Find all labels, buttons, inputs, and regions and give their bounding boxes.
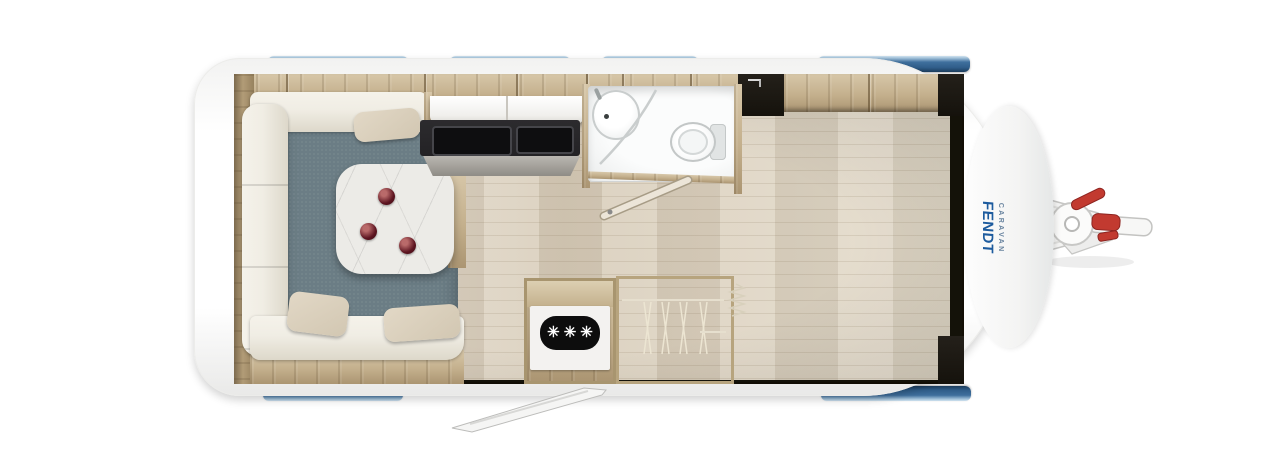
brand-subtitle: CARAVAN [997, 200, 1004, 253]
locker-latch-icon [748, 79, 761, 87]
coffee-cup [378, 188, 395, 205]
bathroom-side-wall [734, 84, 742, 194]
kitchen-worktop [420, 156, 580, 176]
kitchen-hob [516, 126, 574, 154]
freezer-rating-icon: ✳✳✳ [540, 316, 600, 350]
dark-storage-niche [738, 74, 784, 116]
coupling-shaft [1087, 215, 1152, 236]
hitch-handle-red [1070, 187, 1107, 212]
wardrobe [616, 276, 734, 384]
hitch-shadow [1046, 256, 1134, 268]
caravan-interior: ✳✳✳ [234, 74, 964, 384]
sofa-cushion [286, 290, 350, 337]
kitchen-sink [432, 126, 512, 156]
coffee-cup [360, 223, 377, 240]
coupling-lock-red [1091, 213, 1120, 231]
caravan-floorplan: ✳✳✳ [0, 0, 1280, 471]
sink-drain [604, 114, 609, 119]
dark-corner-bottom [938, 336, 964, 384]
sofa-cushion [353, 107, 421, 143]
toilet-seat [678, 129, 708, 155]
coupling-head [1051, 203, 1093, 245]
brand-name: FENDT [980, 200, 995, 254]
breakaway-grip-red [1097, 230, 1118, 241]
cabinet-divider [868, 74, 870, 112]
coffee-cup [399, 237, 416, 254]
jockey-wheel-arm [1058, 226, 1112, 254]
sofa-cushion [383, 303, 461, 342]
front-logo: CARAVAN FENDT [978, 185, 1006, 269]
fridge-top [527, 281, 613, 307]
dark-corner-top [938, 74, 964, 116]
dining-table [336, 164, 454, 274]
coupling-head-center [1065, 217, 1079, 231]
